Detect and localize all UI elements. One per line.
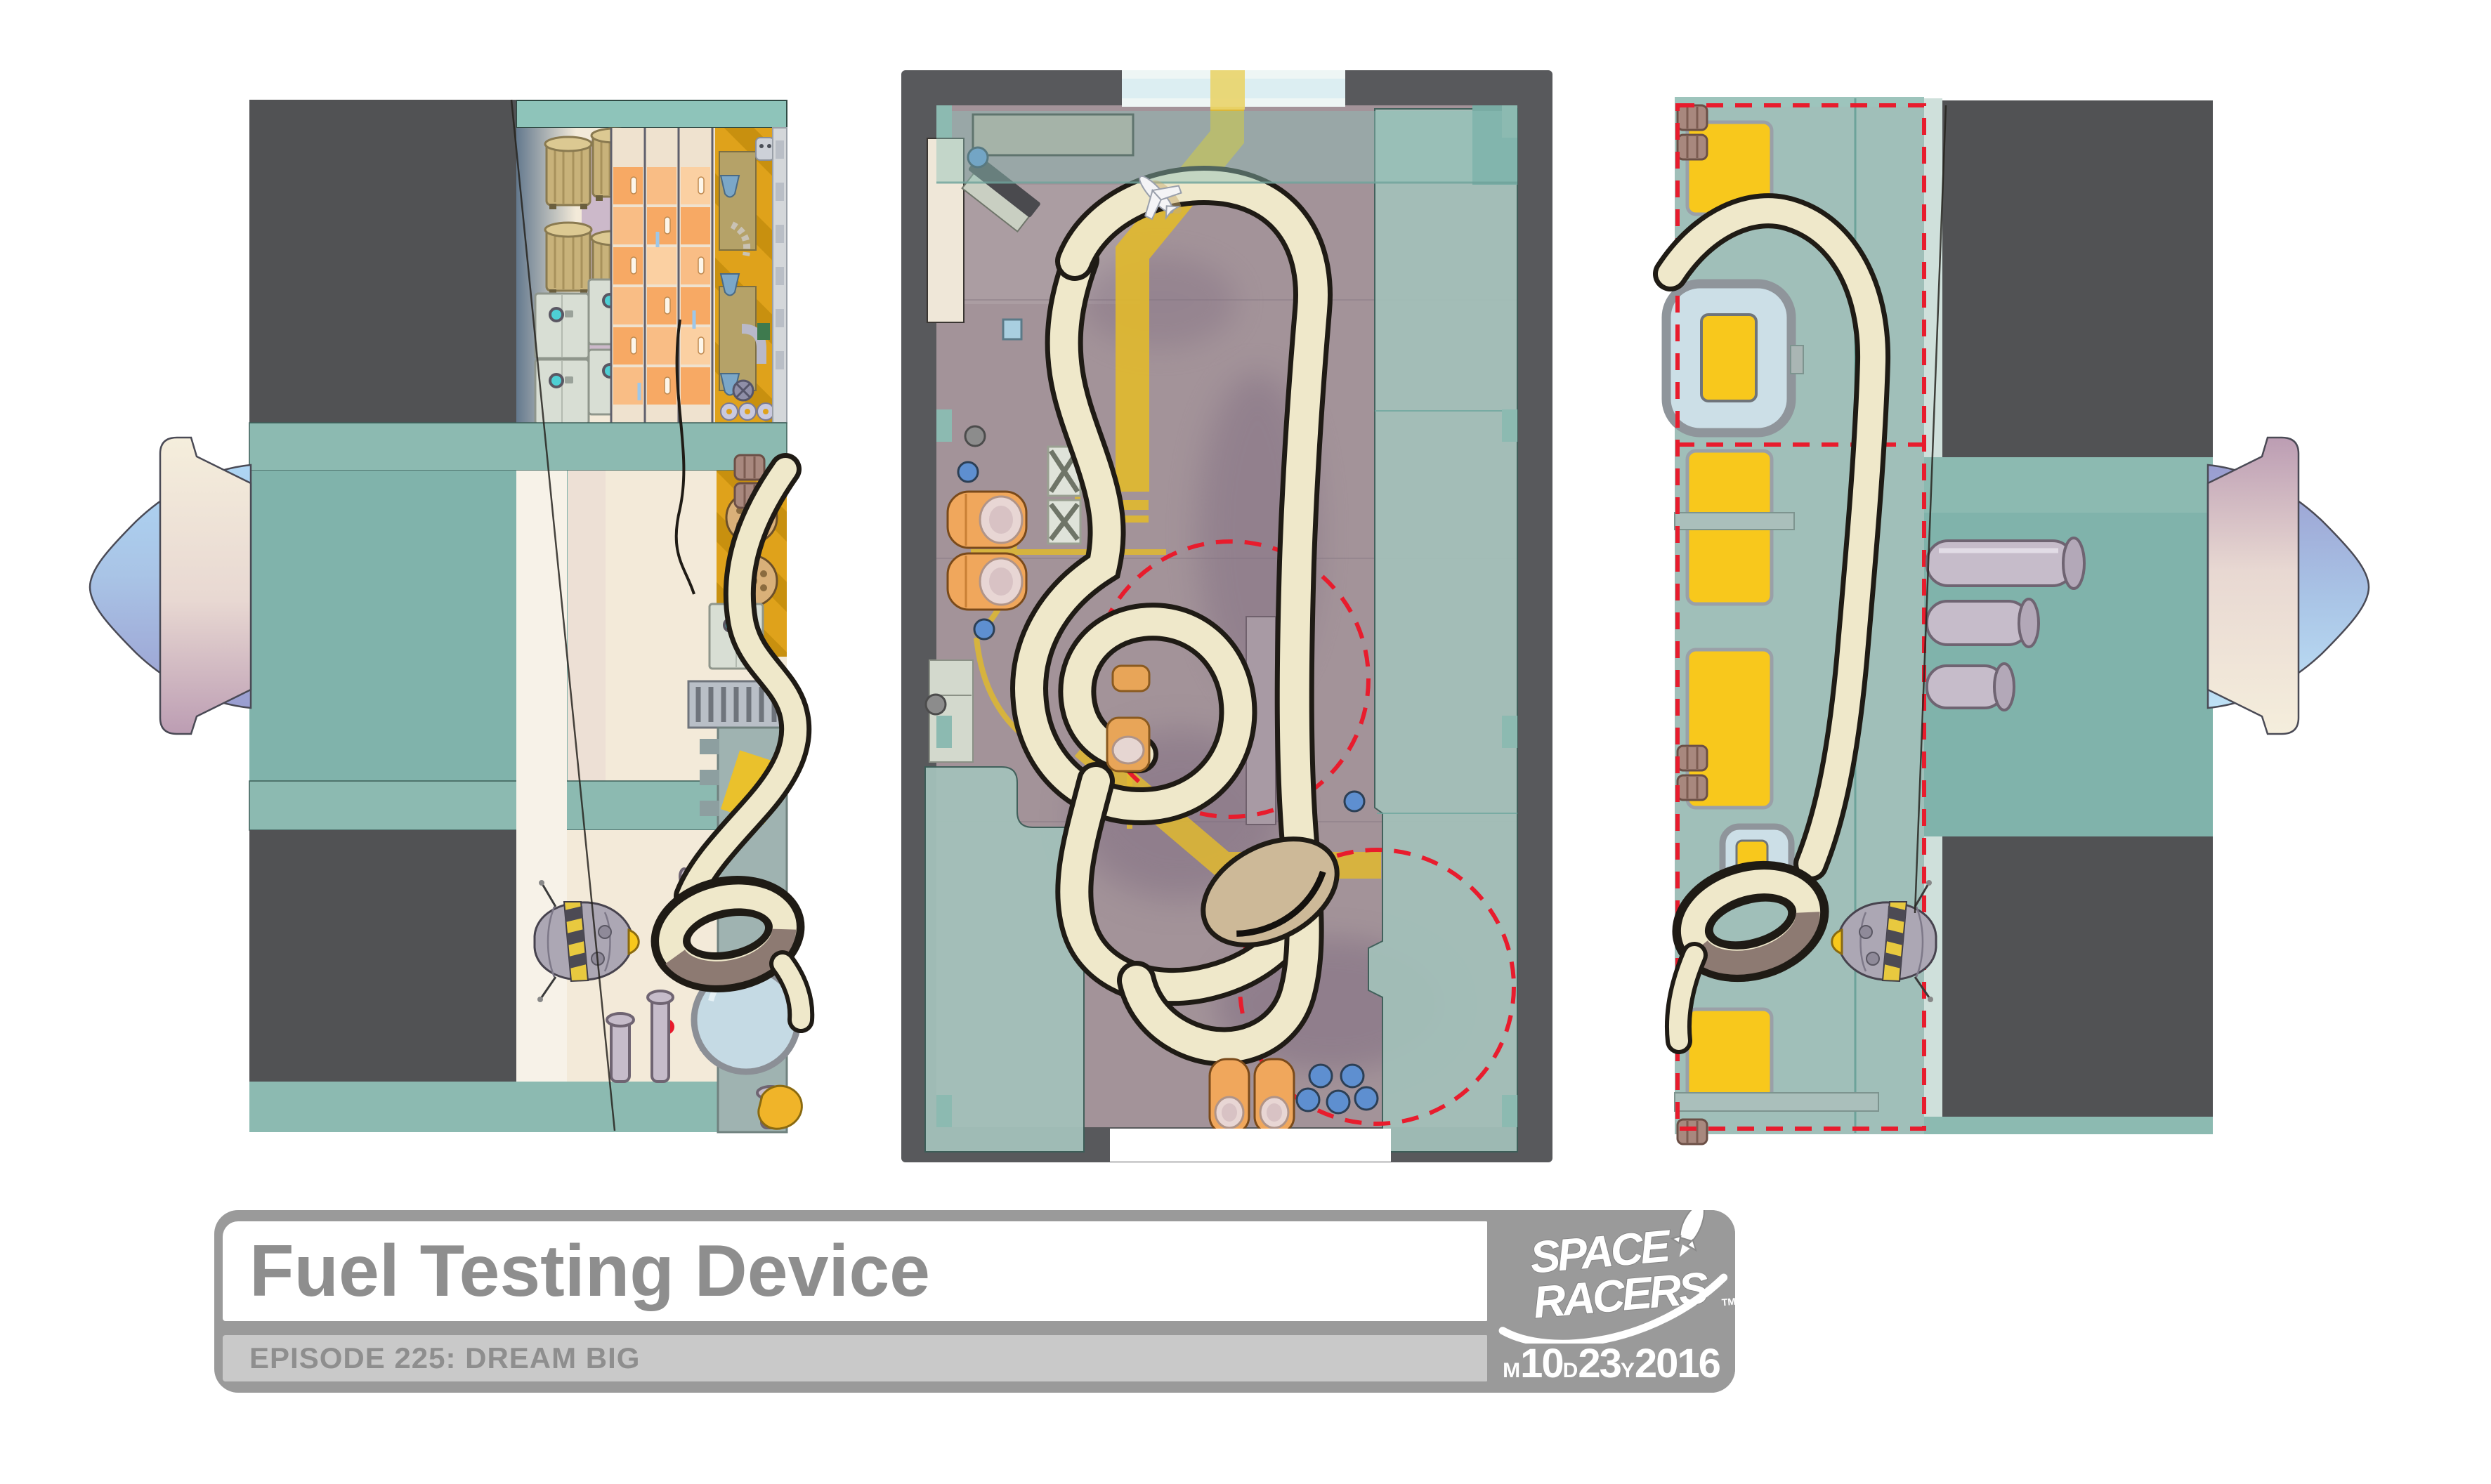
sheet-title: Fuel Testing Device — [223, 1230, 930, 1313]
plan-view-panel — [901, 70, 1552, 1162]
left-garage-interior — [516, 84, 794, 435]
left-top-band — [516, 100, 787, 128]
left-mid-band — [249, 423, 787, 471]
right-dark-slab-top — [1942, 100, 2213, 457]
blue-crate — [1003, 320, 1021, 339]
logo-tab: SPACE RACERS TM M10D23Y2016 — [1487, 1210, 1735, 1393]
day-label: D — [1563, 1360, 1578, 1381]
left-elevation-panel — [249, 84, 813, 1132]
fuel-pump — [1107, 666, 1149, 771]
month-value: 10 — [1520, 1344, 1563, 1384]
right-elevation-panel — [1661, 97, 2213, 1144]
right-dark-slab-bottom — [1942, 836, 2213, 1117]
model-sheet-page: Fuel Testing Device EPISODE 225: DREAM B… — [0, 0, 2491, 1484]
day-value: 23 — [1578, 1344, 1621, 1384]
title-block: Fuel Testing Device EPISODE 225: DREAM B… — [214, 1210, 1735, 1393]
space-racers-logo: SPACE RACERS TM — [1487, 1210, 1735, 1344]
date-stamp: M10D23Y2016 — [1487, 1344, 1735, 1384]
rocket-icon — [1666, 1210, 1713, 1262]
left-dark-slab-bottom — [249, 830, 516, 1082]
right-bottom-strip — [1924, 1117, 2213, 1134]
left-viewing-dome — [90, 438, 251, 734]
left-dark-slab-top — [249, 100, 516, 423]
month-label: M — [1503, 1360, 1520, 1381]
episode-label: EPISODE 225: DREAM BIG — [223, 1341, 640, 1375]
episode-bar: EPISODE 225: DREAM BIG — [223, 1335, 1489, 1381]
year-value: 2016 — [1635, 1344, 1720, 1384]
yellow-cloth — [759, 1086, 802, 1129]
glass-strip — [936, 111, 1517, 183]
right-viewing-dome — [2208, 438, 2369, 734]
trademark-mark: TM — [1721, 1296, 1735, 1308]
right-mid-band — [1924, 457, 2213, 513]
left-bottom-band — [249, 1082, 787, 1132]
right-mezzanine-overlay — [1368, 109, 1517, 1152]
title-area: Fuel Testing Device — [223, 1221, 1489, 1321]
year-label: Y — [1621, 1360, 1635, 1381]
left-wall-highlight-strip — [516, 471, 567, 1082]
